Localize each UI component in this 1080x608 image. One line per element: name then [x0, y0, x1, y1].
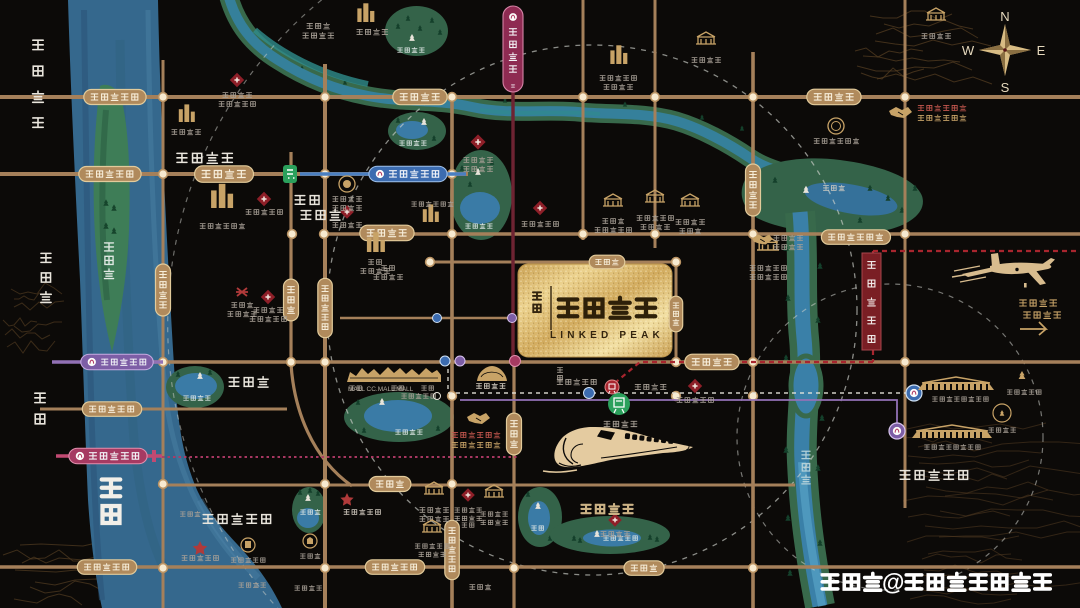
svg-text:W: W — [962, 43, 975, 58]
svg-text:E: E — [1037, 43, 1046, 58]
svg-text:LINKED PEAK: LINKED PEAK — [550, 330, 664, 341]
svg-text:@: @ — [882, 569, 904, 595]
svg-text:N: N — [1000, 9, 1009, 24]
svg-text:S: S — [1001, 80, 1010, 95]
